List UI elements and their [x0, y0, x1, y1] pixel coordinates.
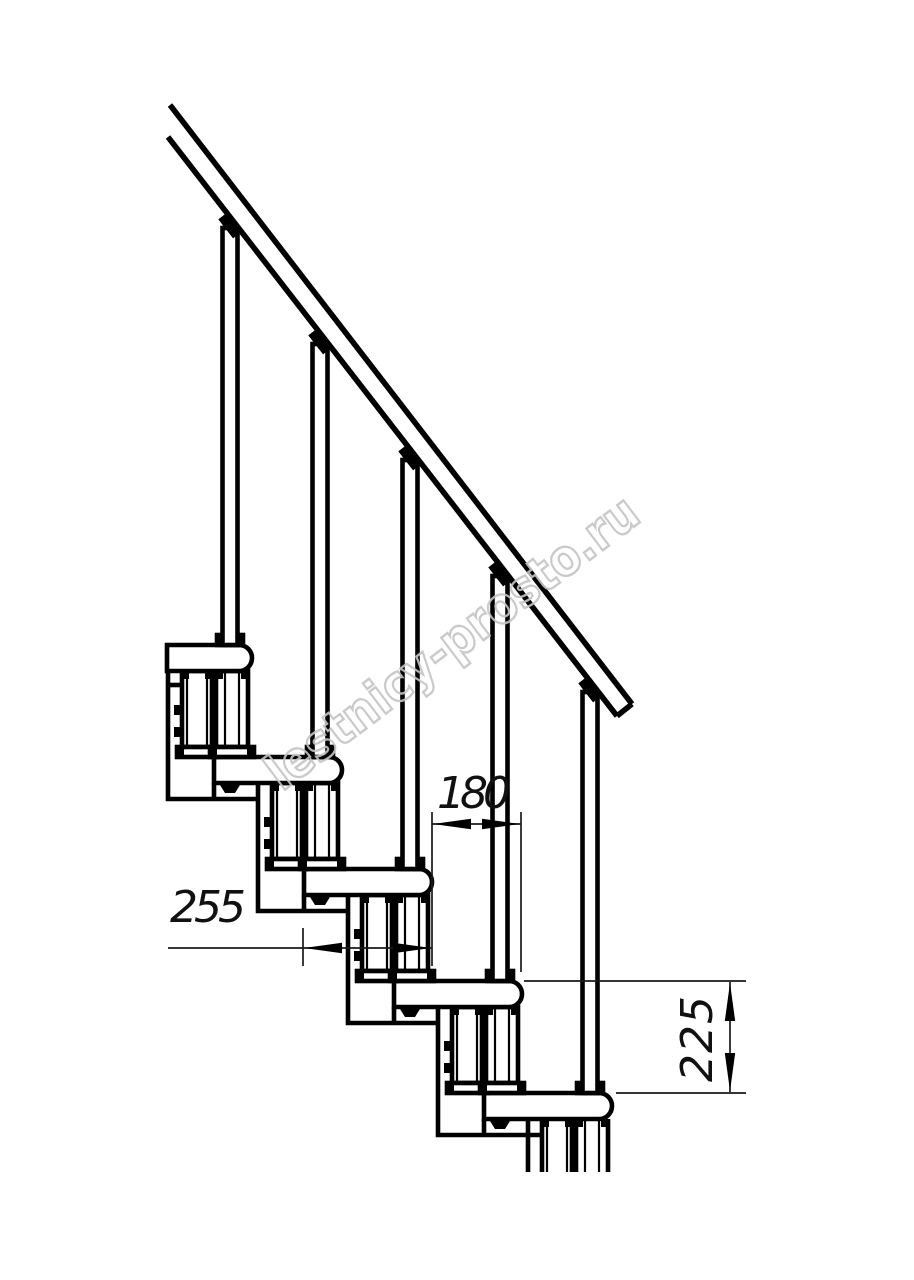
support-rod-2 — [306, 783, 338, 859]
tread-3 — [304, 869, 432, 895]
staircase-diagram: 180 255 225 lestnicy-prosto.ru — [0, 0, 914, 1280]
staircase-drawing-page: 180 255 225 lestnicy-prosto.ru — [0, 0, 914, 1280]
dimension-step-rise: 225 — [524, 981, 746, 1093]
dimension-label-225: 225 — [672, 996, 723, 1082]
support-rod-4 — [486, 1007, 518, 1083]
tread-1 — [167, 645, 252, 671]
baluster-1 — [223, 228, 238, 645]
support-column-3 — [362, 895, 392, 971]
tread-4 — [394, 981, 522, 1007]
baluster-2 — [313, 344, 328, 757]
baluster-5 — [583, 692, 598, 1093]
tread-5 — [484, 1093, 612, 1119]
dimension-label-180: 180 — [437, 768, 511, 819]
support-column-4 — [452, 1007, 482, 1083]
support-column-1 — [182, 671, 212, 747]
dimension-label-255: 255 — [170, 882, 246, 933]
support-rod-1 — [216, 671, 248, 747]
support-rod-3 — [396, 895, 428, 971]
